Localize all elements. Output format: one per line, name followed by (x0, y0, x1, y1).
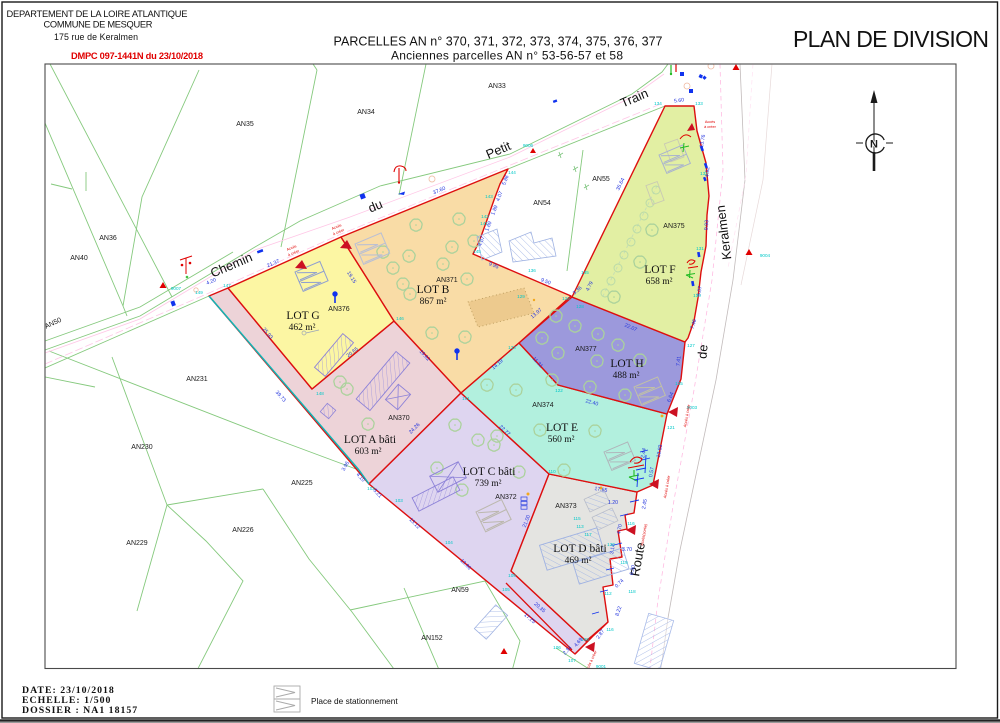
svg-text:LOT D bâti: LOT D bâti (553, 543, 606, 555)
svg-text:AN35: AN35 (236, 121, 254, 128)
svg-text:3.70: 3.70 (622, 547, 632, 553)
svg-text:à créer: à créer (704, 125, 717, 129)
svg-text:PLAN DE DIVISION: PLAN DE DIVISION (793, 26, 989, 52)
svg-text:DMPC 097-1441N du 23/10/2018: DMPC 097-1441N du 23/10/2018 (71, 51, 203, 61)
svg-text:110: 110 (548, 469, 556, 474)
svg-text:AN372: AN372 (495, 494, 517, 501)
svg-text:LOT E: LOT E (546, 422, 578, 434)
svg-text:AN34: AN34 (357, 109, 375, 116)
svg-text:LOT A bâti: LOT A bâti (344, 434, 396, 446)
svg-text:120: 120 (607, 542, 615, 547)
svg-text:469 m²: 469 m² (565, 556, 592, 566)
svg-text:9004: 9004 (760, 253, 771, 258)
svg-text:LOT H: LOT H (610, 358, 643, 370)
svg-text:7.41: 7.41 (675, 356, 682, 367)
svg-text:LOT B: LOT B (417, 284, 450, 296)
svg-text:Place de stationnement: Place de stationnement (311, 696, 398, 706)
svg-text:AN36: AN36 (99, 235, 117, 242)
svg-text:144: 144 (508, 170, 516, 175)
svg-text:739 m²: 739 m² (475, 479, 502, 489)
svg-text:146: 146 (396, 316, 404, 321)
svg-text:143: 143 (485, 194, 493, 199)
svg-text:131: 131 (696, 246, 704, 251)
svg-text:106: 106 (553, 645, 561, 650)
svg-text:103: 103 (395, 498, 403, 503)
svg-text:117: 117 (584, 532, 592, 537)
svg-text:109: 109 (508, 573, 516, 578)
svg-text:LOT G: LOT G (286, 310, 319, 322)
svg-text:130: 130 (693, 293, 701, 298)
svg-text:1.20: 1.20 (608, 500, 618, 506)
svg-text:133: 133 (695, 101, 703, 106)
svg-text:148: 148 (316, 391, 324, 396)
svg-text:145: 145 (473, 249, 481, 254)
svg-text:AN377: AN377 (575, 346, 597, 353)
svg-text:AN230: AN230 (131, 444, 153, 451)
svg-text:118: 118 (628, 589, 636, 594)
svg-text:AN59: AN59 (451, 587, 469, 594)
svg-text:AN54: AN54 (533, 200, 551, 207)
svg-text:AN229: AN229 (126, 540, 148, 547)
svg-text:de: de (694, 344, 710, 359)
svg-text:101: 101 (462, 396, 470, 401)
svg-text:867 m²: 867 m² (420, 297, 447, 307)
svg-text:128: 128 (576, 304, 584, 309)
svg-text:9.93: 9.93 (704, 220, 711, 231)
svg-text:149: 149 (195, 290, 203, 295)
svg-text:125: 125 (675, 381, 683, 386)
svg-text:Accès: Accès (705, 120, 715, 124)
svg-text:121: 121 (667, 425, 675, 430)
svg-text:462 m²: 462 m² (289, 323, 316, 333)
svg-text:134: 134 (654, 101, 662, 106)
svg-text:129: 129 (517, 294, 525, 299)
svg-text:AN55: AN55 (592, 176, 610, 183)
svg-text:115: 115 (573, 516, 581, 521)
svg-text:LOT C bâti: LOT C bâti (463, 466, 516, 478)
svg-text:175 rue de Keralmen: 175 rue de Keralmen (54, 32, 138, 42)
svg-text:9007: 9007 (171, 286, 182, 291)
svg-text:AN40: AN40 (70, 255, 88, 262)
svg-text:122: 122 (555, 388, 563, 393)
svg-text:141: 141 (480, 221, 488, 226)
svg-text:116: 116 (606, 627, 614, 632)
svg-text:127: 127 (687, 343, 695, 348)
svg-text:AN231: AN231 (186, 376, 208, 383)
svg-text:AN226: AN226 (232, 527, 254, 534)
svg-text:113: 113 (576, 524, 584, 529)
svg-text:126: 126 (562, 296, 570, 301)
svg-text:AN376: AN376 (328, 306, 350, 313)
svg-text:COMMUNE DE MESQUER: COMMUNE DE MESQUER (44, 20, 153, 30)
svg-text:132: 132 (700, 171, 708, 176)
svg-text:AN33: AN33 (488, 83, 506, 90)
svg-text:PARCELLES AN n° 370, 371, 372,: PARCELLES AN n° 370, 371, 372, 373, 374,… (334, 35, 663, 49)
svg-text:135: 135 (581, 270, 589, 275)
svg-text:N: N (870, 139, 878, 151)
svg-text:AN370: AN370 (388, 415, 410, 422)
svg-text:104: 104 (445, 540, 453, 545)
svg-text:AN374: AN374 (532, 402, 554, 409)
svg-text:102: 102 (367, 486, 375, 491)
svg-text:Anciennes parcelles AN n° 53-5: Anciennes parcelles AN n° 53-56-57 et 58 (391, 49, 623, 63)
svg-text:AN375: AN375 (663, 223, 685, 230)
svg-text:488 m²: 488 m² (613, 371, 640, 381)
svg-text:658 m²: 658 m² (646, 277, 673, 287)
svg-text:LOT F: LOT F (644, 264, 675, 276)
svg-text:560 m²: 560 m² (548, 435, 575, 445)
svg-text:119: 119 (620, 560, 628, 565)
svg-text:147: 147 (223, 283, 231, 288)
svg-text:AN373: AN373 (555, 503, 577, 510)
svg-text:AN152: AN152 (421, 635, 443, 642)
svg-text:9006: 9006 (523, 143, 534, 148)
svg-text:DEPARTEMENT DE LA LOIRE ATLANT: DEPARTEMENT DE LA LOIRE ATLANTIQUE (7, 9, 188, 19)
svg-text:AN225: AN225 (291, 480, 313, 487)
svg-text:AN371: AN371 (436, 277, 458, 284)
svg-text:142: 142 (481, 214, 489, 219)
svg-text:116: 116 (627, 521, 635, 526)
svg-text:123: 123 (508, 345, 516, 350)
svg-text:136: 136 (528, 268, 536, 273)
svg-text:108: 108 (581, 637, 589, 642)
svg-text:105: 105 (502, 587, 510, 592)
svg-text:603 m²: 603 m² (355, 447, 382, 457)
svg-text:DOSSIER : NA1 18157: DOSSIER : NA1 18157 (22, 705, 138, 716)
svg-text:107: 107 (568, 658, 576, 663)
svg-text:112: 112 (604, 591, 612, 596)
